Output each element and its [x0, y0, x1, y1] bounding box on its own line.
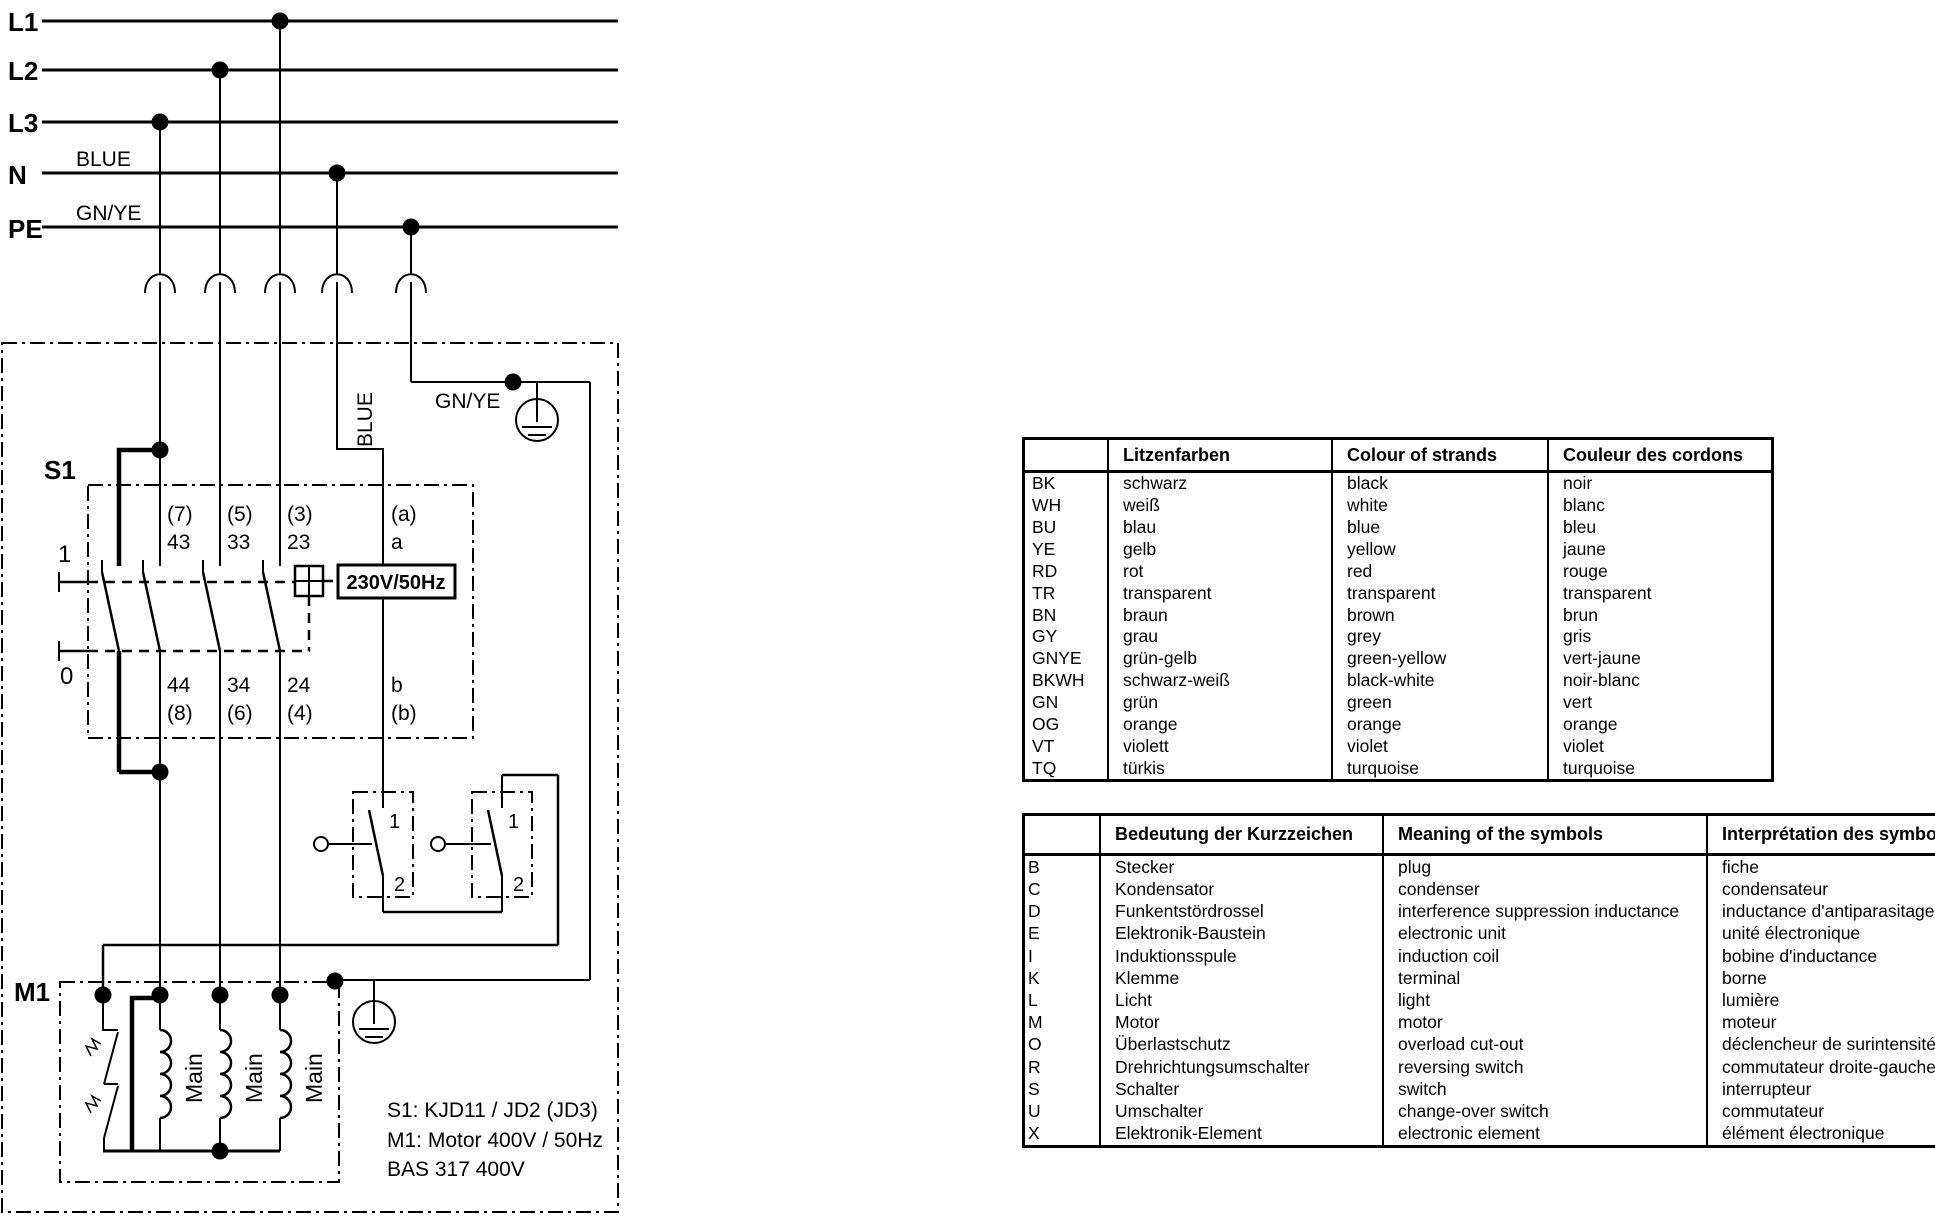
- symbol-code-cell: X: [1024, 1123, 1101, 1147]
- table-row: EElektronik-Bausteinelectronic unitunité…: [1024, 923, 1935, 945]
- junction-dot: [505, 374, 522, 391]
- table-cell: Drehrichtungsumschalter: [1100, 1056, 1383, 1078]
- table-cell: türkis: [1108, 757, 1332, 780]
- table-row: SSchalterswitchinterrupteur: [1024, 1078, 1935, 1100]
- table-cell: turquoise: [1548, 757, 1773, 780]
- table-cell: brun: [1548, 604, 1773, 626]
- table-row: GNgrüngreenvert: [1024, 692, 1773, 714]
- table-cell: Kondensator: [1100, 878, 1383, 900]
- table-cell: red: [1332, 560, 1548, 582]
- table-row: GNYEgrün-gelbgreen-yellowvert-jaune: [1024, 648, 1773, 670]
- contact-bottom-pin: (b): [391, 702, 417, 725]
- table-row: VTviolettvioletviolet: [1024, 735, 1773, 757]
- table-cell: Motor: [1100, 1012, 1383, 1034]
- symbol-code-cell: BKWH: [1024, 670, 1109, 692]
- contact-top-pin: (7): [167, 503, 193, 526]
- header-row: LitzenfarbenColour of strandsCouleur des…: [1024, 439, 1773, 472]
- table-cell: blanc: [1548, 495, 1773, 517]
- symbol-code-cell: VT: [1024, 735, 1109, 757]
- n-wire-color-label: BLUE: [76, 148, 131, 171]
- m1-label: M1: [14, 977, 50, 1007]
- s1-position-off-label: 0: [60, 663, 73, 690]
- table-cell: transparent: [1108, 582, 1332, 604]
- column-header: Couleur des cordons: [1548, 439, 1773, 472]
- symbol-meaning-table: Bedeutung der KurzzeichenMeaning of the …: [1022, 813, 1935, 1148]
- table-row: LLichtlightlumière: [1024, 989, 1935, 1011]
- column-header: [1024, 439, 1109, 472]
- blue-vertical-label: BLUE: [354, 392, 377, 447]
- aux-terminal-label: 2: [513, 874, 524, 896]
- table-cell: plug: [1383, 855, 1707, 879]
- motor-winding: Main: [160, 995, 207, 1151]
- symbol-code-cell: K: [1024, 967, 1101, 989]
- contact-bottom-num: b: [391, 674, 403, 697]
- pe-wire-color-label: GN/YE: [76, 202, 141, 225]
- table-row: OÜberlastschutzoverload cut-outdéclenche…: [1024, 1034, 1935, 1056]
- aux-switch-1: 1 2: [314, 792, 413, 912]
- s1-terminal-labels: (7) 43 44 (8) (5) 33 34 (6) (3) 23 24 (4…: [167, 503, 417, 725]
- table-row: KKlemmeterminalborne: [1024, 967, 1935, 989]
- table-cell: unité électronique: [1707, 923, 1935, 945]
- symbol-code-cell: M: [1024, 1012, 1101, 1034]
- contact-bottom-num: 44: [167, 674, 191, 697]
- junction-dot: [152, 442, 169, 459]
- table-row: BKschwarzblacknoir: [1024, 472, 1773, 495]
- table-cell: light: [1383, 989, 1707, 1011]
- symbol-code-cell: U: [1024, 1100, 1101, 1122]
- rail-label-n: N: [8, 160, 27, 190]
- table-cell: green-yellow: [1332, 648, 1548, 670]
- table-cell: rouge: [1548, 560, 1773, 582]
- table-cell: black-white: [1332, 670, 1548, 692]
- table-cell: electronic unit: [1383, 923, 1707, 945]
- symbol-code-cell: I: [1024, 945, 1101, 967]
- contact-bottom-pin: (8): [167, 702, 193, 725]
- table-cell: vert-jaune: [1548, 648, 1773, 670]
- table-cell: Umschalter: [1100, 1100, 1383, 1122]
- table-row: BKWHschwarz-weißblack-whitenoir-blanc: [1024, 670, 1773, 692]
- s1-contact-levers: [102, 560, 280, 651]
- table-cell: noir: [1548, 472, 1773, 495]
- s1-position-marks: 1 0: [58, 541, 338, 690]
- wiring-schematic: L1 L2 L3 N PE BLUE GN/YE: [0, 0, 1020, 1221]
- table-row: BNbraunbrownbrun: [1024, 604, 1773, 626]
- gnye-inner-label: GN/YE: [435, 390, 500, 413]
- table-cell: Funkentstördrossel: [1100, 901, 1383, 923]
- table-cell: violett: [1108, 735, 1332, 757]
- contact-top-pin: (3): [287, 503, 313, 526]
- symbol-code-cell: WH: [1024, 495, 1109, 517]
- winding-label: Main: [301, 1053, 327, 1103]
- winding-label: Main: [181, 1053, 207, 1103]
- pe-routing: GN/YE: [327, 374, 591, 1044]
- rail-label-pe: PE: [8, 214, 43, 244]
- contact-top-num: a: [391, 531, 403, 554]
- contact-top-pin: (5): [227, 503, 253, 526]
- aux-terminal-label: 1: [389, 811, 400, 833]
- table-cell: blue: [1332, 517, 1548, 539]
- table-cell: déclencheur de surintensité: [1707, 1034, 1935, 1056]
- table-row: OGorangeorangeorange: [1024, 713, 1773, 735]
- table-cell: Elektronik-Baustein: [1100, 923, 1383, 945]
- motor-winding: Main: [280, 995, 327, 1151]
- rail-label-l1: L1: [8, 7, 38, 37]
- table-cell: brown: [1332, 604, 1548, 626]
- table-cell: grey: [1332, 626, 1548, 648]
- contact-bottom-pin: (4): [287, 702, 313, 725]
- column-header: Bedeutung der Kurzzeichen: [1100, 815, 1383, 855]
- table-cell: overload cut-out: [1383, 1034, 1707, 1056]
- symbol-code-cell: E: [1024, 923, 1101, 945]
- strand-color-table: LitzenfarbenColour of strandsCouleur des…: [1022, 437, 1774, 782]
- actuator-cross-box-icon: [295, 566, 323, 596]
- table-cell: Induktionsspule: [1100, 945, 1383, 967]
- symbol-code-cell: BK: [1024, 472, 1109, 495]
- symbol-code-cell: C: [1024, 878, 1101, 900]
- coil-230v-box: 230V/50Hz: [338, 565, 455, 598]
- table-cell: Schalter: [1100, 1078, 1383, 1100]
- symbol-code-cell: BN: [1024, 604, 1109, 626]
- note-line: S1: KJD11 / JD2 (JD3): [387, 1099, 598, 1122]
- contact-top-num: 23: [287, 531, 310, 554]
- table-cell: commutateur droite-gauche: [1707, 1056, 1935, 1078]
- table-cell: bleu: [1548, 517, 1773, 539]
- table-cell: transparent: [1548, 582, 1773, 604]
- table-row: MMotormotormoteur: [1024, 1012, 1935, 1034]
- table-cell: bobine d'inductance: [1707, 945, 1935, 967]
- contact-top-pin: (a): [391, 503, 417, 526]
- table-cell: élément électronique: [1707, 1123, 1935, 1147]
- winding-label: Main: [241, 1053, 267, 1103]
- table-cell: interrupteur: [1707, 1078, 1935, 1100]
- table-cell: yellow: [1332, 539, 1548, 561]
- table-row: TRtransparenttransparenttransparent: [1024, 582, 1773, 604]
- table-cell: schwarz: [1108, 472, 1332, 495]
- table-cell: commutateur: [1707, 1100, 1935, 1122]
- symbol-code-cell: GNYE: [1024, 648, 1109, 670]
- table-row: BSteckerplugfiche: [1024, 855, 1935, 879]
- table-cell: grün: [1108, 692, 1332, 714]
- table-cell: change-over switch: [1383, 1100, 1707, 1122]
- table-cell: grün-gelb: [1108, 648, 1332, 670]
- table-cell: orange: [1332, 713, 1548, 735]
- table-cell: schwarz-weiß: [1108, 670, 1332, 692]
- table-cell: violet: [1548, 735, 1773, 757]
- table-row: DFunkentstördrosselinterference suppress…: [1024, 901, 1935, 923]
- aux-switch-2: 1 2: [431, 775, 532, 912]
- table-row: TQtürkisturquoiseturquoise: [1024, 757, 1773, 780]
- table-cell: fiche: [1707, 855, 1935, 879]
- earth-ground-icon: [353, 1001, 395, 1043]
- table-cell: turquoise: [1332, 757, 1548, 780]
- symbol-code-cell: TR: [1024, 582, 1109, 604]
- symbol-code-cell: OG: [1024, 713, 1109, 735]
- s1-label: S1: [44, 455, 76, 485]
- table-row: YEgelbyellowjaune: [1024, 539, 1773, 561]
- column-header: Interprétation des symboles: [1707, 815, 1935, 855]
- table-cell: orange: [1548, 713, 1773, 735]
- actuator-terminal-icon: [314, 837, 328, 851]
- table-cell: reversing switch: [1383, 1056, 1707, 1078]
- table-cell: orange: [1108, 713, 1332, 735]
- supply-rails: L1 L2 L3 N PE BLUE GN/YE: [8, 7, 618, 244]
- symbol-code-cell: BU: [1024, 517, 1109, 539]
- rail-label-l2: L2: [8, 56, 38, 86]
- table-cell: Stecker: [1100, 855, 1383, 879]
- symbol-code-cell: YE: [1024, 539, 1109, 561]
- contact-bottom-num: 24: [287, 674, 311, 697]
- symbol-code-cell: RD: [1024, 560, 1109, 582]
- table-cell: transparent: [1332, 582, 1548, 604]
- table-cell: white: [1332, 495, 1548, 517]
- table-cell: motor: [1383, 1012, 1707, 1034]
- aux-terminal-label: 2: [394, 874, 405, 896]
- table-cell: gelb: [1108, 539, 1332, 561]
- scanned-wiring-diagram-page: L1 L2 L3 N PE BLUE GN/YE: [0, 0, 1935, 1221]
- equipment-notes: S1: KJD11 / JD2 (JD3) M1: Motor 400V / 5…: [387, 1099, 603, 1181]
- table-cell: noir-blanc: [1548, 670, 1773, 692]
- column-header: Meaning of the symbols: [1383, 815, 1707, 855]
- symbol-code-cell: TQ: [1024, 757, 1109, 780]
- table-cell: terminal: [1383, 967, 1707, 989]
- table-cell: blau: [1108, 517, 1332, 539]
- table-cell: rot: [1108, 560, 1332, 582]
- aux-terminal-label: 1: [508, 811, 519, 833]
- table-cell: green: [1332, 692, 1548, 714]
- table-cell: vert: [1548, 692, 1773, 714]
- table-cell: condenser: [1383, 878, 1707, 900]
- thermal-overload-icon: [86, 995, 118, 1151]
- table-row: RDrotredrouge: [1024, 560, 1773, 582]
- table-cell: black: [1332, 472, 1548, 495]
- note-line: BAS 317 400V: [387, 1158, 525, 1181]
- contact-bottom-pin: (6): [227, 702, 253, 725]
- table-cell: borne: [1707, 967, 1935, 989]
- table-cell: lumière: [1707, 989, 1935, 1011]
- contact-bottom-num: 34: [227, 674, 251, 697]
- symbol-code-cell: R: [1024, 1056, 1101, 1078]
- table-row: IInduktionsspuleinduction coilbobine d'i…: [1024, 945, 1935, 967]
- symbol-code-cell: GY: [1024, 626, 1109, 648]
- table-cell: Licht: [1100, 989, 1383, 1011]
- symbol-code-cell: S: [1024, 1078, 1101, 1100]
- table-cell: switch: [1383, 1078, 1707, 1100]
- aux-switch-routing: [103, 775, 558, 995]
- coil-voltage-label: 230V/50Hz: [347, 572, 446, 594]
- contact-top-num: 43: [167, 531, 190, 554]
- actuator-terminal-icon: [431, 837, 445, 851]
- header-row: Bedeutung der KurzzeichenMeaning of the …: [1024, 815, 1935, 855]
- symbol-code-cell: B: [1024, 855, 1101, 879]
- table-row: CKondensatorcondensercondensateur: [1024, 878, 1935, 900]
- table-cell: gris: [1548, 626, 1773, 648]
- table-cell: induction coil: [1383, 945, 1707, 967]
- junction-dot: [212, 1143, 229, 1160]
- column-header: Colour of strands: [1332, 439, 1548, 472]
- table-cell: braun: [1108, 604, 1332, 626]
- table-cell: weiß: [1108, 495, 1332, 517]
- column-header: [1024, 815, 1101, 855]
- symbol-code-cell: L: [1024, 989, 1101, 1011]
- symbol-code-cell: D: [1024, 901, 1101, 923]
- symbol-code-cell: O: [1024, 1034, 1101, 1056]
- table-row: UUmschalterchange-over switchcommutateur: [1024, 1100, 1935, 1122]
- table-cell: condensateur: [1707, 878, 1935, 900]
- motor-winding: Main: [220, 995, 267, 1151]
- table-cell: Überlastschutz: [1100, 1034, 1383, 1056]
- table-row: WHweißwhiteblanc: [1024, 495, 1773, 517]
- table-cell: inductance d'antiparasitage: [1707, 901, 1935, 923]
- earth-ground-icon: [516, 399, 558, 441]
- contact-top-num: 33: [227, 531, 250, 554]
- table-cell: grau: [1108, 626, 1332, 648]
- motor-m1-block: M1 Main: [14, 977, 339, 1182]
- table-row: BUblaubluebleu: [1024, 517, 1773, 539]
- rail-label-l3: L3: [8, 108, 38, 138]
- table-cell: Klemme: [1100, 967, 1383, 989]
- table-row: RDrehrichtungsumschalterreversing switch…: [1024, 1056, 1935, 1078]
- table-cell: moteur: [1707, 1012, 1935, 1034]
- s1-position-on-label: 1: [58, 541, 71, 568]
- table-cell: electronic element: [1383, 1123, 1707, 1147]
- column-header: Litzenfarben: [1108, 439, 1332, 472]
- table-cell: Elektronik-Element: [1100, 1123, 1383, 1147]
- table-row: XElektronik-Elementelectronic elementélé…: [1024, 1123, 1935, 1147]
- symbol-code-cell: GN: [1024, 692, 1109, 714]
- table-cell: violet: [1332, 735, 1548, 757]
- table-cell: interference suppression inductance: [1383, 901, 1707, 923]
- table-cell: jaune: [1548, 539, 1773, 561]
- note-line: M1: Motor 400V / 50Hz: [387, 1129, 603, 1152]
- table-row: GYgraugreygris: [1024, 626, 1773, 648]
